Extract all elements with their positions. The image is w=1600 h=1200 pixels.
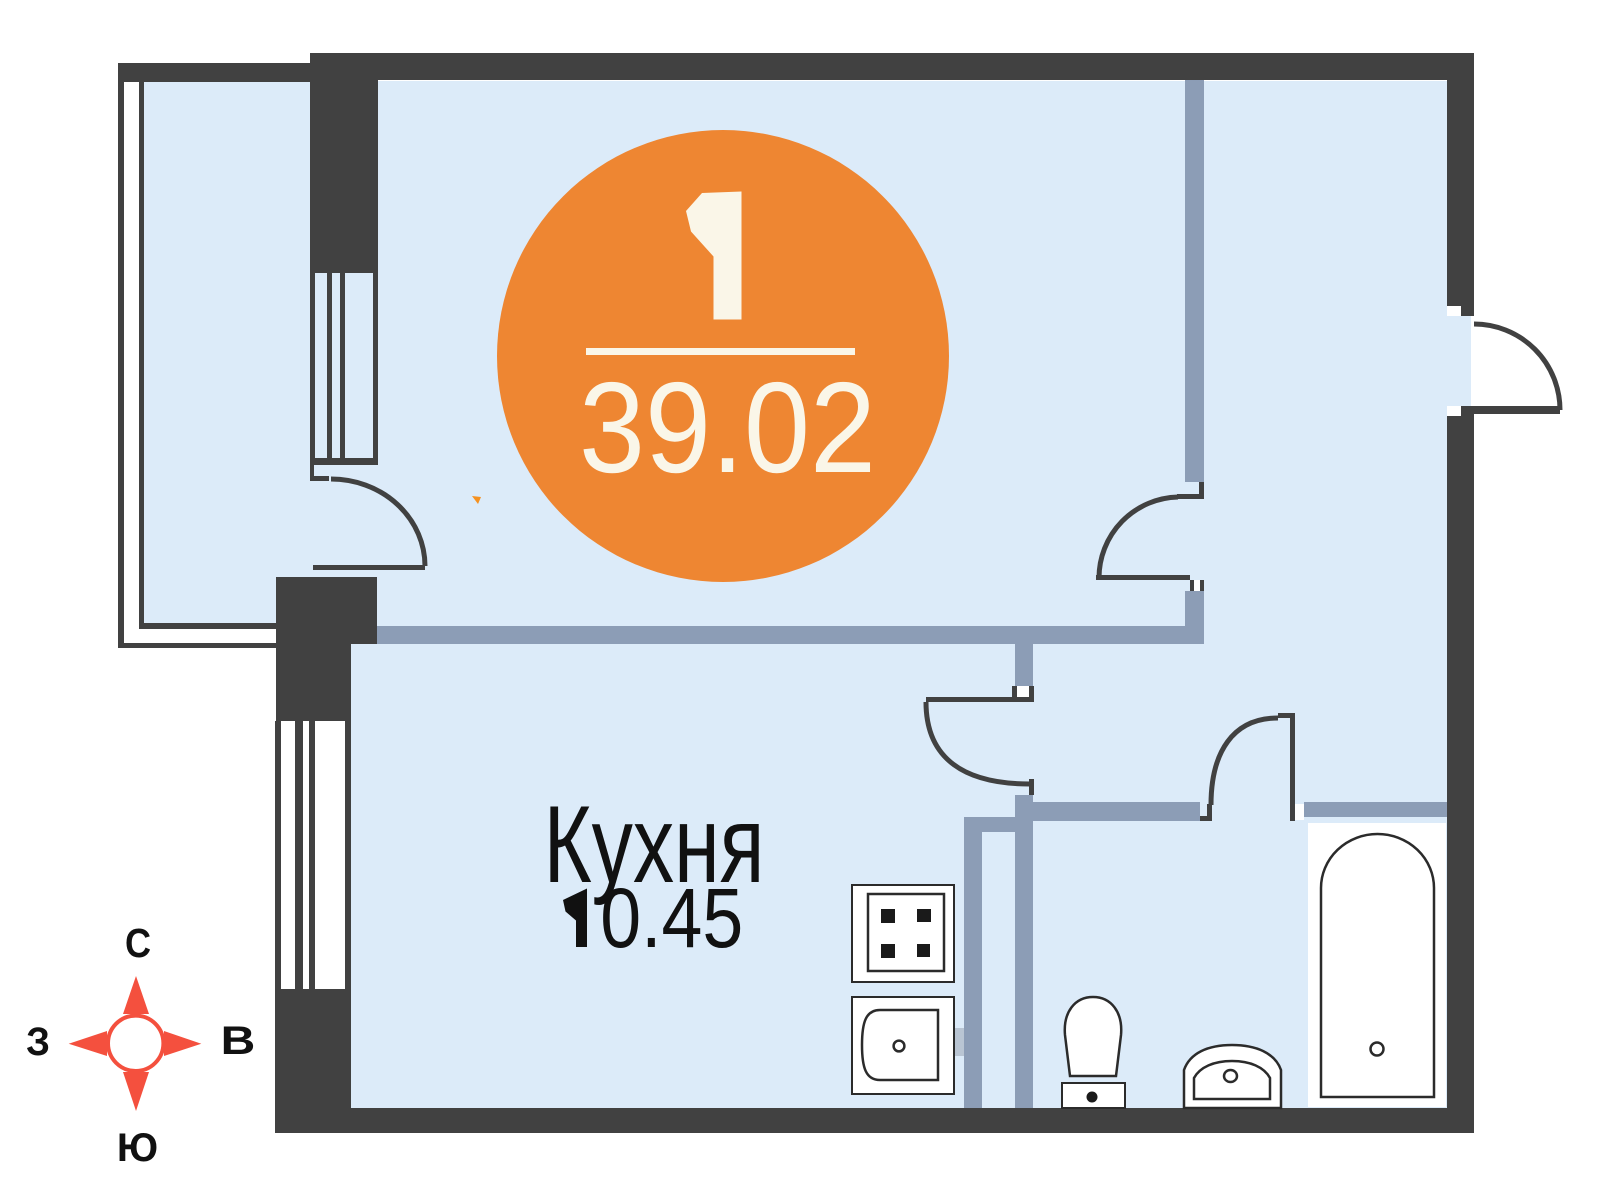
svg-text:39.02: 39.02 [579,356,876,500]
svg-text:Ю: Ю [117,1126,158,1170]
svg-text:В: В [221,1019,256,1063]
svg-text:З: З [26,1020,50,1064]
svg-text:С: С [125,921,151,967]
svg-text:0.45: 0.45 [600,871,743,965]
